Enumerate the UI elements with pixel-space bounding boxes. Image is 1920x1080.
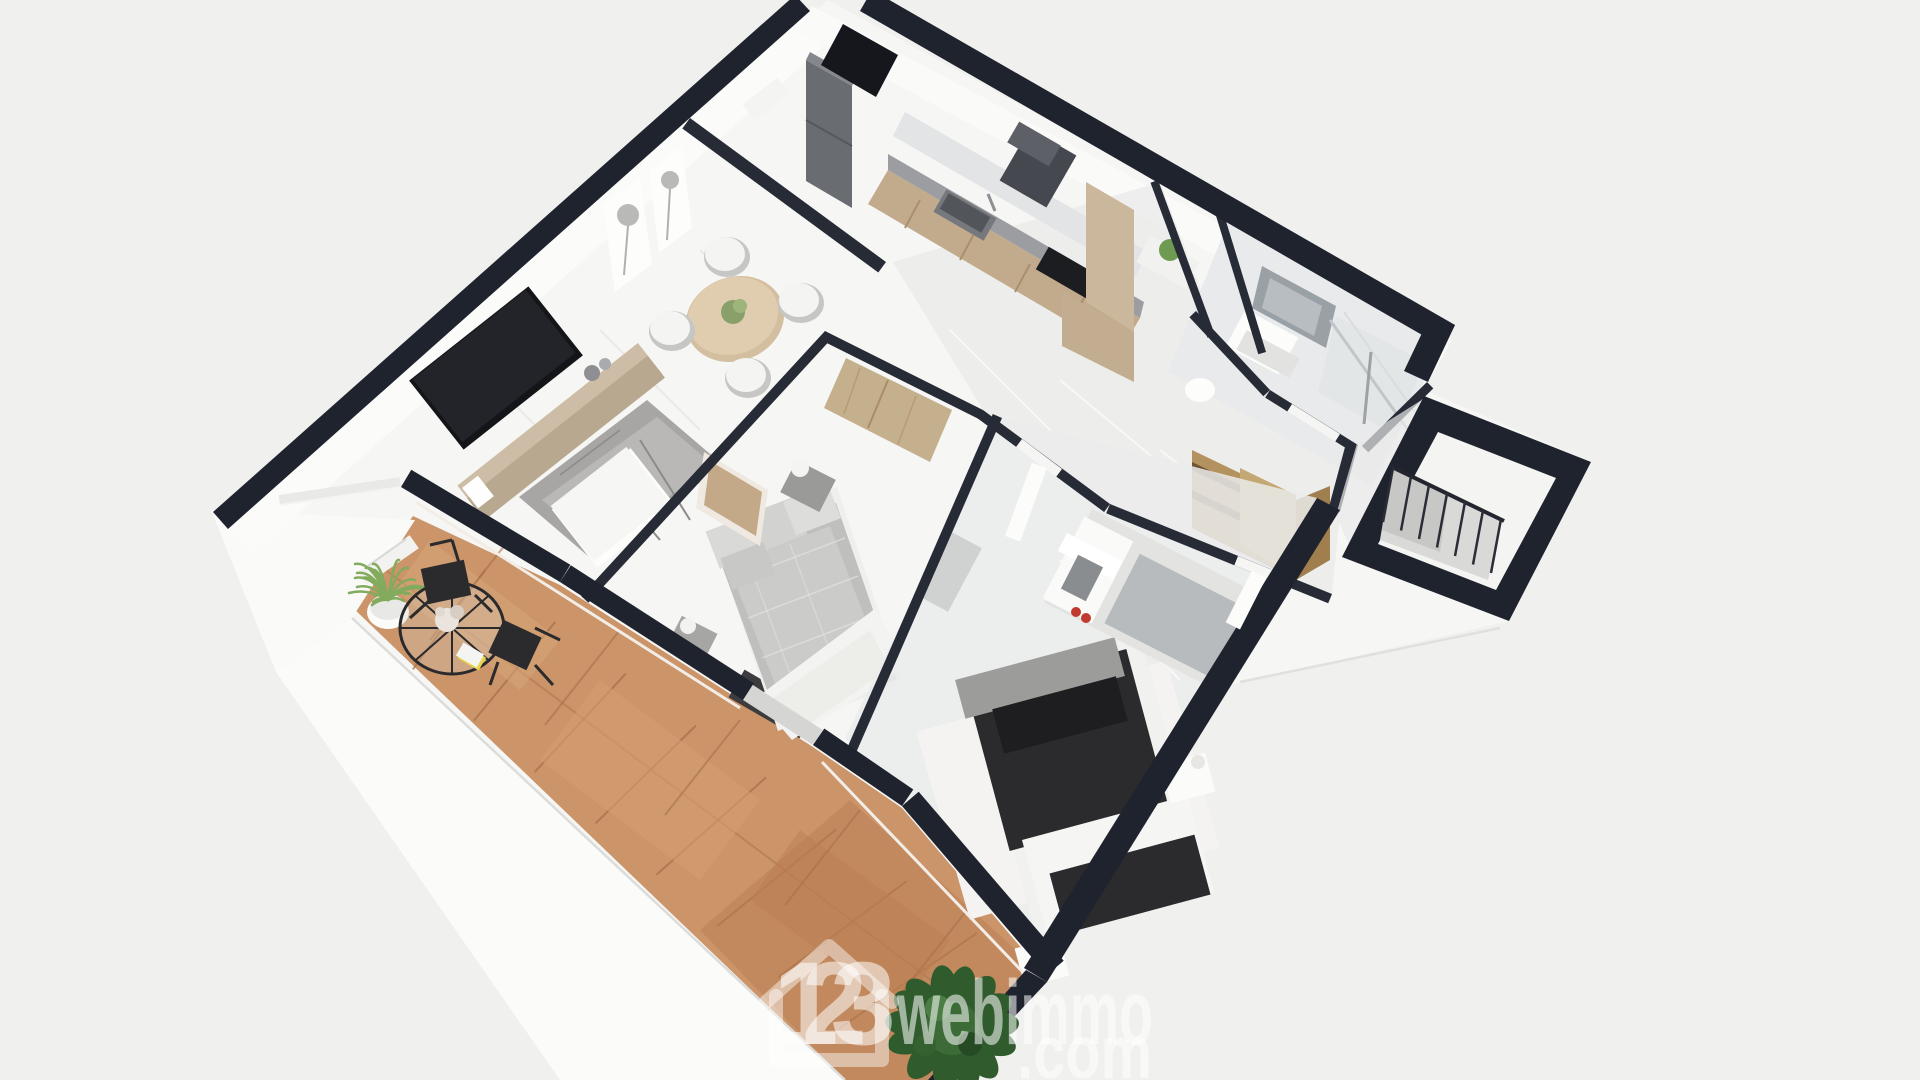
svg-text:.com: .com [1017,1010,1152,1080]
svg-text:123: 123 [773,938,896,1070]
